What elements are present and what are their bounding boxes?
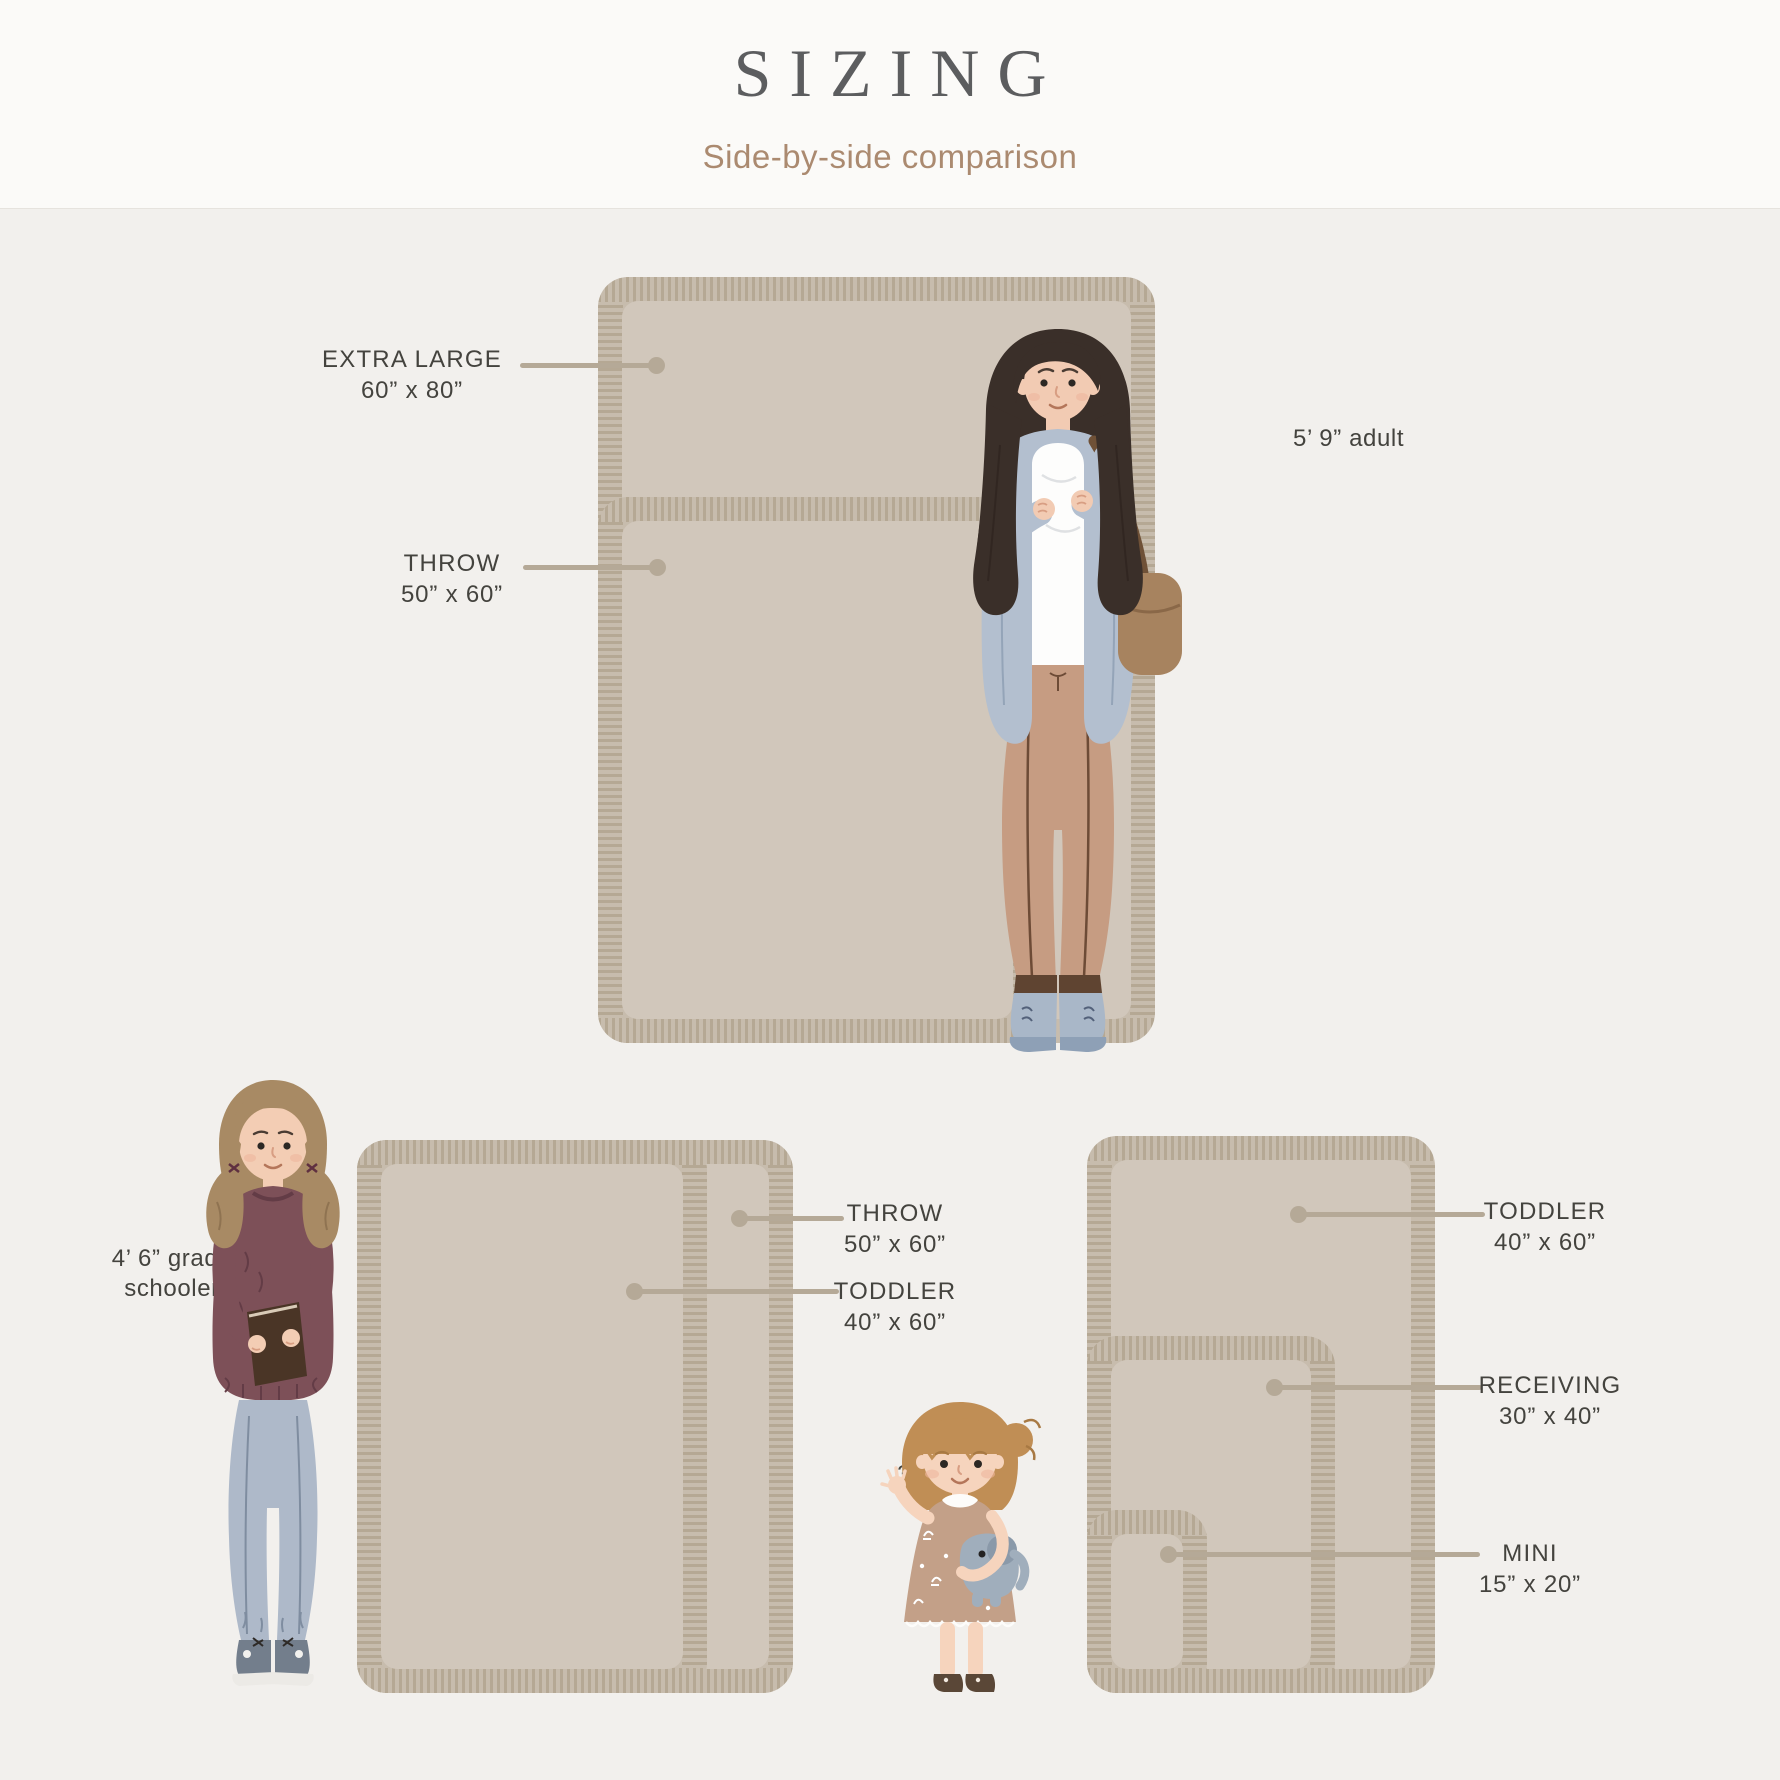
toddler-illustration	[866, 1396, 1096, 1702]
label-mini-size: 15” x 20”	[1435, 1569, 1625, 1600]
label-extra-large: EXTRA LARGE 60” x 80”	[312, 344, 512, 406]
label-mini-name: MINI	[1435, 1538, 1625, 1569]
leader-extra-large	[520, 363, 656, 368]
label-toddler-bottom-left: TODDLER 40” x 60”	[795, 1276, 995, 1338]
label-toddler-right: TODDLER 40” x 60”	[1445, 1196, 1645, 1258]
label-throw-top-size: 50” x 60”	[352, 579, 552, 610]
label-toddler-bottom-left-name: TODDLER	[795, 1276, 995, 1307]
header: SIZING Side-by-side comparison	[0, 0, 1780, 209]
label-throw-top: THROW 50” x 60”	[352, 548, 552, 610]
page-subtitle: Side-by-side comparison	[0, 138, 1780, 176]
sizing-infographic: SIZING Side-by-side comparison EXTRA LAR…	[0, 0, 1780, 1780]
label-throw-bottom-size: 50” x 60”	[795, 1229, 995, 1260]
label-mini: MINI 15” x 20”	[1435, 1538, 1625, 1600]
label-extra-large-name: EXTRA LARGE	[312, 344, 512, 375]
label-toddler-bottom-left-size: 40” x 60”	[795, 1307, 995, 1338]
label-extra-large-size: 60” x 80”	[312, 375, 512, 406]
label-toddler-right-size: 40” x 60”	[1445, 1227, 1645, 1258]
label-throw-bottom-name: THROW	[795, 1198, 995, 1229]
label-throw-top-name: THROW	[352, 548, 552, 579]
adult-illustration	[930, 325, 1250, 1070]
grade-schooler-illustration	[195, 1072, 410, 1697]
label-receiving: RECEIVING 30” x 40”	[1445, 1370, 1655, 1432]
blanket-mini	[1087, 1510, 1207, 1693]
page-title: SIZING	[0, 34, 1780, 113]
leader-mini	[1169, 1552, 1480, 1557]
label-receiving-size: 30” x 40”	[1445, 1401, 1655, 1432]
label-adult: 5’ 9” adult	[1293, 424, 1404, 454]
label-toddler-right-name: TODDLER	[1445, 1196, 1645, 1227]
label-receiving-name: RECEIVING	[1445, 1370, 1655, 1401]
label-throw-bottom: THROW 50” x 60”	[795, 1198, 995, 1260]
